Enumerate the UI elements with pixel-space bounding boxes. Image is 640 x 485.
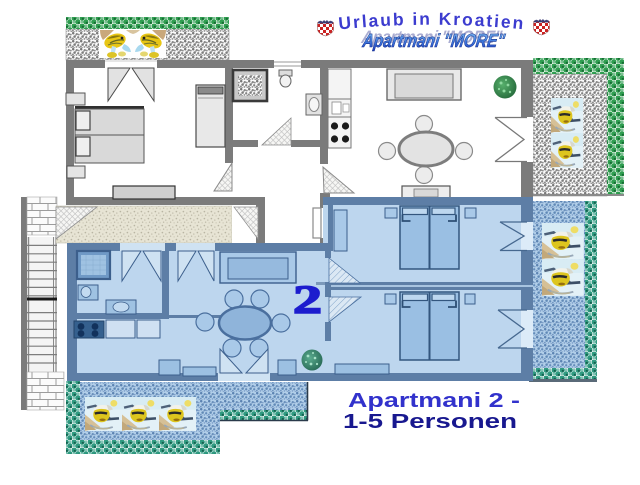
- svg-text:1-5 Personen: 1-5 Personen: [343, 411, 517, 433]
- svg-text:Apartmani 2 -: Apartmani 2 -: [348, 390, 520, 412]
- svg-text:Apartmani "MORE": Apartmani "MORE": [360, 31, 507, 52]
- svg-text:2: 2: [293, 277, 322, 322]
